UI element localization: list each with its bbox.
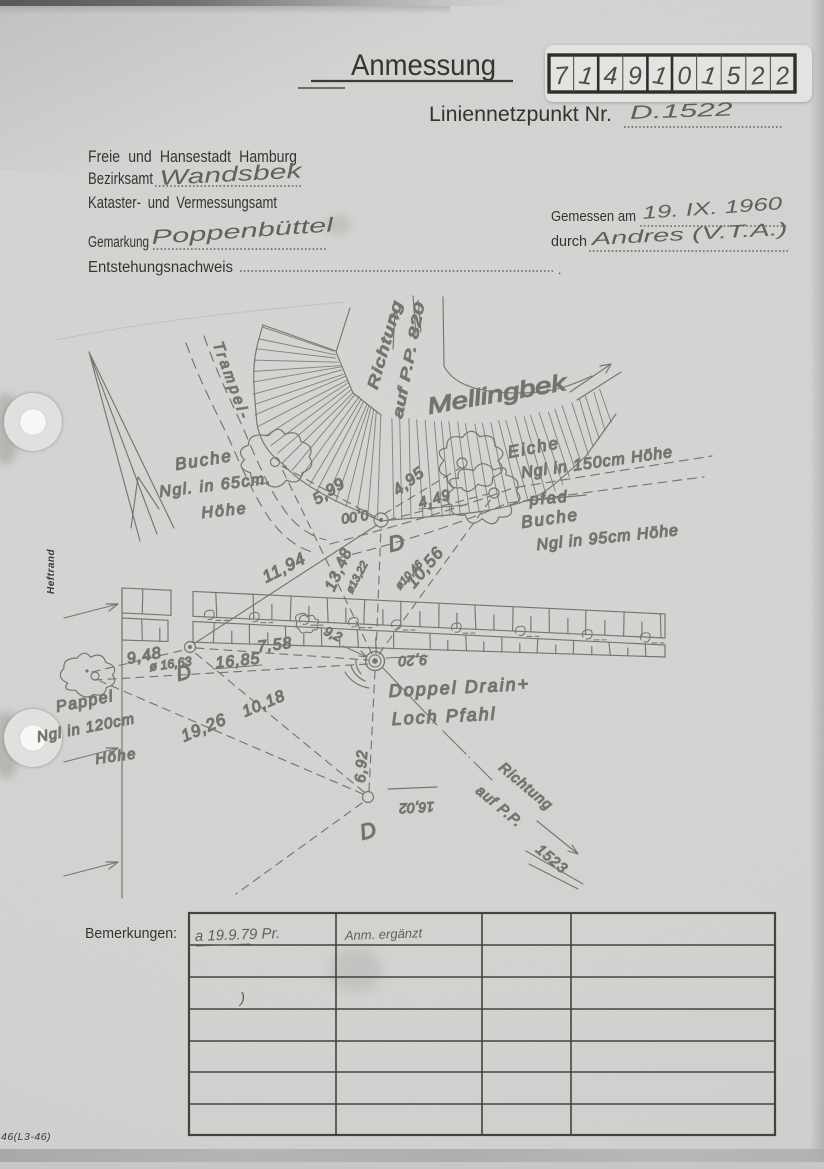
svg-text:46(L3-46): 46(L3-46) [1, 1131, 51, 1143]
svg-text:Buche: Buche [520, 505, 580, 532]
svg-text:Bemerkungen:: Bemerkungen: [85, 925, 177, 942]
svg-text:6,92: 6,92 [352, 749, 371, 783]
svg-text:Buche: Buche [174, 446, 234, 474]
svg-text:D: D [386, 529, 407, 557]
svg-text:4: 4 [603, 62, 618, 90]
svg-text:Anmessung: Anmessung [351, 49, 496, 82]
svg-text:9: 9 [627, 62, 642, 91]
svg-text:9,2: 9,2 [322, 623, 346, 645]
svg-text:0: 0 [677, 62, 692, 90]
svg-text:Loch Pfahl: Loch Pfahl [391, 704, 497, 729]
svg-text:D.1522: D.1522 [629, 99, 733, 124]
svg-text:2: 2 [773, 61, 791, 90]
svg-text:16,02: 16,02 [399, 799, 435, 817]
svg-text:1: 1 [700, 61, 718, 91]
svg-text:7: 7 [553, 61, 570, 90]
svg-text:2: 2 [749, 61, 766, 90]
svg-text:1523: 1523 [532, 842, 570, 878]
svg-text:Ngl in 120cm: Ngl in 120cm [36, 710, 137, 746]
svg-text:Pappel: Pappel [55, 688, 116, 716]
svg-text:D: D [357, 817, 379, 845]
svg-text:Gemessen am: Gemessen am [551, 208, 636, 225]
svg-text:0,00: 0,00 [340, 507, 370, 527]
svg-text:Höhe: Höhe [201, 500, 249, 522]
svg-text:Anm. ergänzt: Anm. ergänzt [344, 925, 424, 943]
svg-text:Doppel Drain+: Doppel Drain+ [388, 674, 530, 701]
svg-text:Eiche: Eiche [506, 433, 561, 462]
svg-text:Mellingbek: Mellingbek [425, 369, 569, 419]
svg-text:Bezirksamt: Bezirksamt [88, 170, 153, 188]
svg-text:1: 1 [651, 61, 670, 91]
svg-text:a 19.9.79 Pr.: a 19.9.79 Pr. [195, 925, 281, 945]
svg-text:Poppenbüttel: Poppenbüttel [151, 214, 335, 249]
svg-text:durch: durch [551, 233, 587, 250]
svg-text:1: 1 [577, 61, 595, 91]
svg-text:Liniennetzpunkt Nr.: Liniennetzpunkt Nr. [429, 103, 612, 126]
svg-text:Heftrand: Heftrand [46, 548, 57, 594]
svg-text:Kataster- und Vermessungsamt: Kataster- und Vermessungsamt [88, 194, 277, 212]
svg-text:9,20: 9,20 [398, 652, 428, 670]
svg-text:19. IX. 1960: 19. IX. 1960 [642, 193, 783, 223]
svg-text:5: 5 [726, 62, 740, 90]
svg-text:11,94: 11,94 [259, 549, 309, 587]
svg-text:19,26: 19,26 [178, 710, 229, 746]
svg-text:Entstehungsnachweis: Entstehungsnachweis [88, 259, 233, 276]
svg-text:): ) [238, 990, 245, 1007]
svg-text:.: . [558, 263, 561, 277]
svg-text:Gemarkung: Gemarkung [88, 234, 149, 251]
svg-text:10,18: 10,18 [240, 687, 288, 720]
svg-text:Ngl. in 65cm.: Ngl. in 65cm. [158, 470, 272, 501]
